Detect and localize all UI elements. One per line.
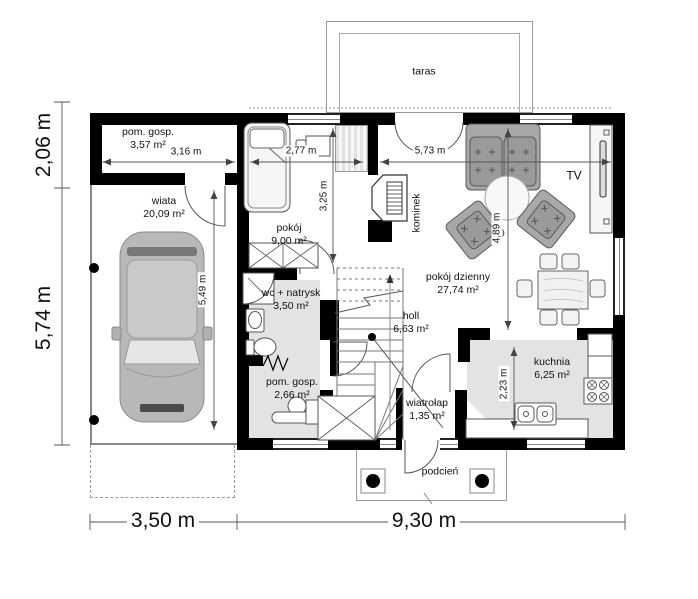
dim-kuchnia-depth: 2,23 m [499, 367, 510, 402]
room-area: 6,25 m² [534, 369, 570, 382]
dim-wiata-depth: 5,49 m [198, 273, 209, 308]
dim-outer-left-bottom: 5,74 m [32, 282, 56, 354]
room-label-wiata: wiata 20,09 m² [143, 195, 184, 221]
room-label-podcien: podcień [422, 465, 459, 478]
room-label-wc-natrysk: wc + natrysk 3,50 m² [262, 287, 321, 313]
room-name: wiatrołap [406, 397, 448, 410]
dim-pokoj-width: 2,77 m [284, 146, 319, 157]
room-label-taras: taras [412, 65, 435, 78]
room-name: holl [393, 310, 429, 323]
tv-label: TV [566, 169, 581, 184]
room-name: podcień [422, 465, 459, 477]
dim-salon-width: 5,73 m [413, 146, 448, 157]
car [112, 232, 212, 422]
dim-outer-bottom-left: 3,50 m [127, 509, 199, 533]
dim-pom-gosp-width: 3,16 m [169, 147, 204, 158]
fireplace [372, 175, 407, 221]
room-label-kominek: kominek [410, 193, 423, 232]
room-name: pom. gosp. [122, 126, 174, 139]
room-name: pokój [271, 222, 307, 235]
room-label-pokoj-dzienny: pokój dzienny 27,74 m² [426, 271, 490, 297]
toilet [246, 338, 276, 356]
newel-post [368, 333, 376, 341]
tv-cabinet [590, 125, 612, 233]
dim-salon-depth: 4,89 m [492, 211, 503, 246]
understairs-closet [318, 396, 375, 440]
room-area: 20,09 m² [143, 208, 184, 221]
room-label-wiatrolap: wiatrołap 1,35 m² [406, 397, 448, 423]
room-label-kuchnia: kuchnia 6,25 m² [534, 356, 570, 382]
room-label-pom-gosp-2: pom. gosp. 2,66 m² [266, 376, 318, 402]
dining-table [538, 271, 588, 309]
room-name: kominek [410, 193, 422, 232]
room-area: 27,74 m² [426, 284, 490, 297]
room-name: wc + natrysk [262, 287, 321, 300]
room-name: taras [412, 65, 435, 77]
bed [244, 123, 290, 212]
room-area: 3,57 m² [122, 139, 174, 152]
room-name: kuchnia [534, 356, 570, 369]
room-area: 9,00 m² [271, 235, 307, 248]
room-area: 3,50 m² [262, 300, 321, 313]
tv-set [600, 141, 606, 197]
plan-linework [0, 0, 698, 599]
heater-zigzag-symbol [263, 356, 288, 370]
floor-plan: taras pom. gosp. 3,57 m² wiata 20,09 m² … [0, 0, 698, 599]
room-label-pokoj: pokój 9,00 m² [271, 222, 307, 248]
stove [584, 378, 612, 404]
room-label-pom-gosp-1: pom. gosp. 3,57 m² [122, 126, 174, 152]
dim-outer-bottom-right: 9,30 m [388, 509, 460, 533]
kitchen-sink [515, 403, 556, 425]
room-name: pom. gosp. [266, 376, 318, 389]
room-label-holl: holl 6,63 m² [393, 310, 429, 336]
room-area: 2,66 m² [266, 389, 318, 402]
room-name: pokój dzienny [426, 271, 490, 284]
room-area: 6,63 m² [393, 323, 429, 336]
room-name: wiata [143, 195, 184, 208]
carport-posts [89, 263, 99, 425]
dim-pokoj-depth: 3,25 m [319, 179, 330, 214]
dim-outer-left-top: 2,06 m [32, 109, 56, 181]
room-area: 1,35 m² [406, 410, 448, 423]
